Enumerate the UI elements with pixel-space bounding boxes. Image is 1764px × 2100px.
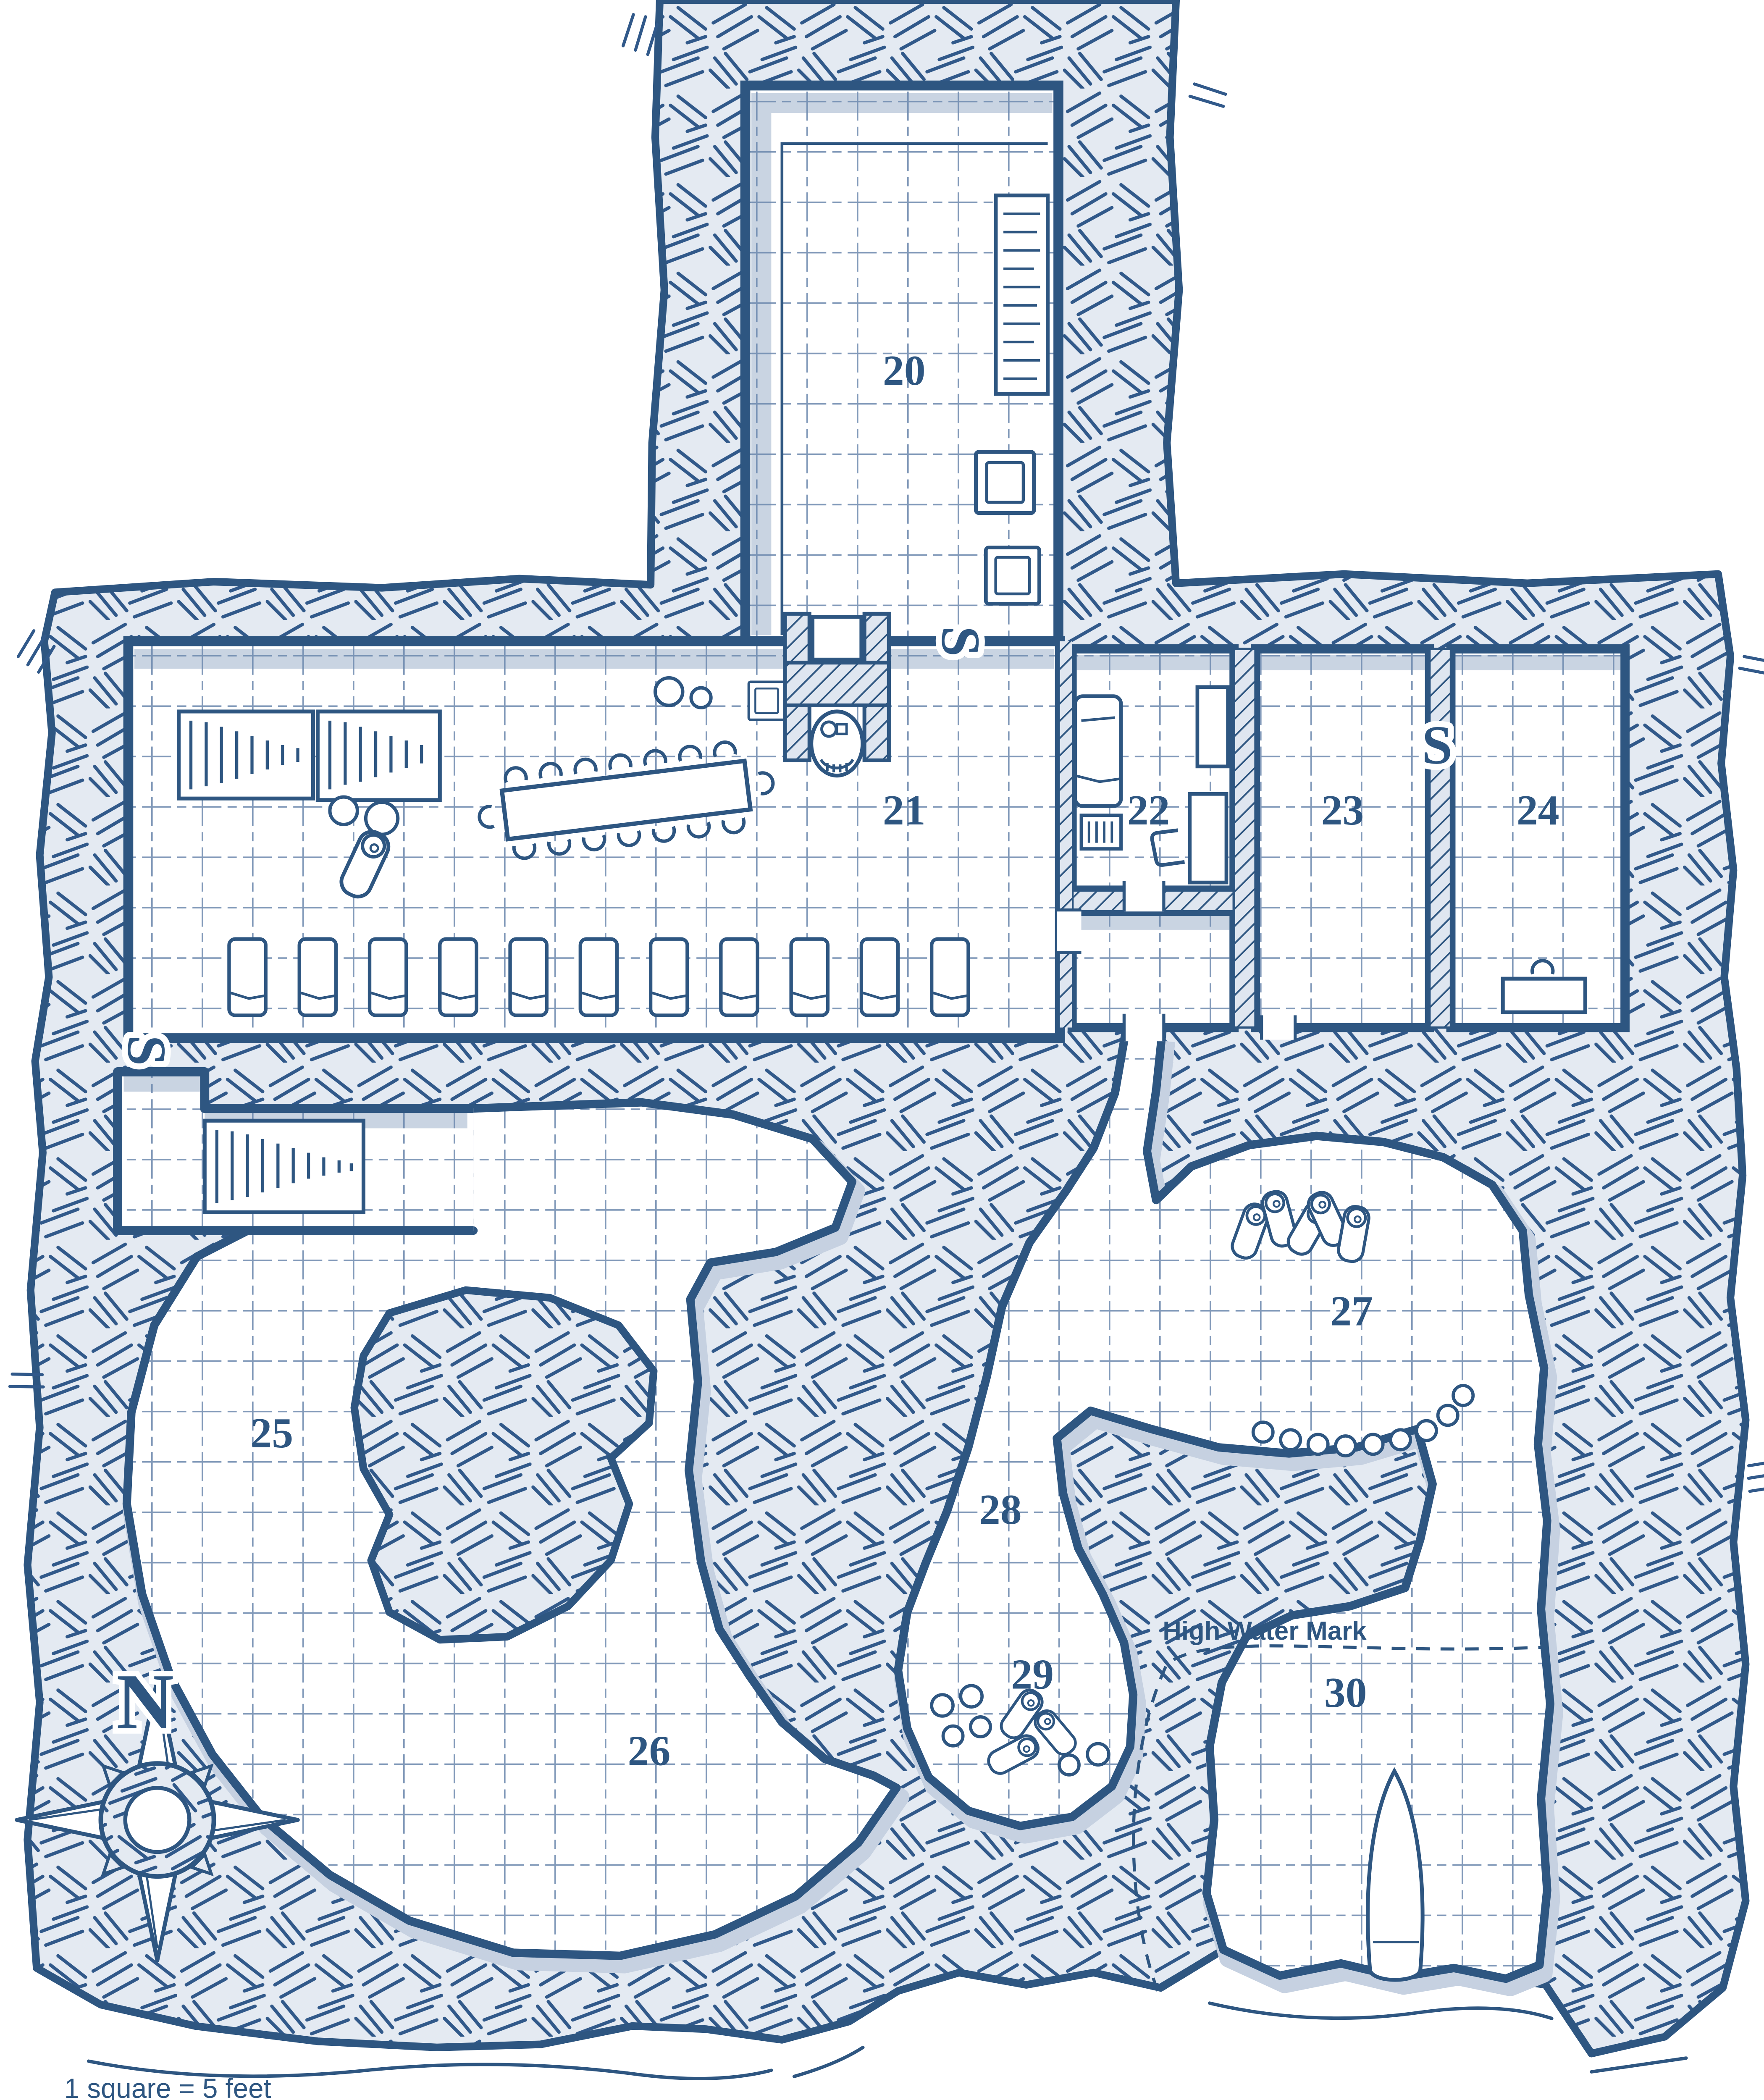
room-23 (1255, 649, 1430, 1028)
room-label-28: 28 (979, 1486, 1022, 1533)
wall-hatched (1234, 649, 1255, 1028)
secret-door-marker: S (1422, 715, 1452, 776)
cask-icon (1417, 1421, 1436, 1441)
wine-rack-icon (205, 1121, 363, 1212)
room-label-30: 30 (1324, 1669, 1367, 1717)
compass-north-label: N (116, 1658, 174, 1746)
cask-icon (1438, 1405, 1458, 1425)
bed-icon (861, 939, 898, 1016)
cask-icon (1059, 1755, 1079, 1775)
bed-icon (1075, 696, 1121, 806)
room-label-20: 20 (883, 347, 926, 394)
cask-icon (971, 1717, 990, 1737)
bed-icon (510, 939, 547, 1016)
stove-and-chimney (785, 614, 889, 775)
bed-icon (721, 939, 757, 1016)
room-label-24: 24 (1517, 787, 1559, 834)
wine-rack-icon (318, 711, 440, 800)
bed-icon (440, 939, 476, 1016)
cask-icon (1087, 1743, 1109, 1765)
room-label-21: 21 (883, 787, 926, 834)
cask-icon (1363, 1434, 1383, 1454)
bed-icon (580, 939, 617, 1016)
cask-icon (1391, 1430, 1410, 1449)
cupboard-icon (1197, 687, 1228, 766)
cask-icon (943, 1726, 963, 1746)
room-label-22: 22 (1127, 787, 1170, 834)
secret-door-marker: S (116, 1035, 177, 1066)
cask-icon (366, 802, 398, 834)
corridor-south-of-22 (1072, 911, 1234, 1027)
cask-icon (932, 1695, 953, 1716)
dungeon-map-page: 20 21 22 23 24 25 26 27 28 29 30 S S S H… (0, 0, 1764, 2100)
wall-hatched (1060, 641, 1072, 1028)
room-label-27: 27 (1330, 1287, 1373, 1335)
wall-hatched (1430, 649, 1451, 1028)
cask-icon (1281, 1430, 1300, 1449)
cask-icon (691, 688, 711, 708)
cask-icon (1453, 1386, 1473, 1405)
room-22 (1072, 649, 1234, 890)
cask-icon (961, 1685, 982, 1707)
room-label-26: 26 (628, 1727, 671, 1774)
cask-icon (1253, 1422, 1273, 1442)
bed-icon (651, 939, 687, 1016)
bed-icon (791, 939, 828, 1016)
room-24 (1451, 649, 1625, 1028)
secret-door-marker: S (930, 626, 991, 656)
room-label-23: 23 (1321, 787, 1364, 834)
stove-icon (811, 711, 863, 776)
high-water-mark-label: High Water Mark (1163, 1617, 1367, 1646)
bed-icon (229, 939, 265, 1016)
bookcase-icon (1190, 794, 1226, 882)
map-scale-note: 1 square = 5 feet (64, 2073, 271, 2100)
dungeon-map: 20 21 22 23 24 25 26 27 28 29 30 S S S H… (0, 0, 1764, 2100)
sink-icon (749, 682, 785, 719)
sink-icon (976, 452, 1034, 513)
room-label-25: 25 (250, 1410, 293, 1457)
cask-icon (330, 797, 357, 824)
bookcase-icon (996, 195, 1048, 394)
wine-rack-icon (1081, 815, 1121, 849)
cask-icon (1336, 1436, 1355, 1456)
wine-rack-icon (178, 711, 313, 798)
sink-icon (986, 548, 1039, 604)
cask-icon (1308, 1434, 1328, 1454)
bed-icon (370, 939, 406, 1016)
bed-icon (932, 939, 968, 1016)
bed-icon (299, 939, 336, 1016)
cask-icon (655, 678, 682, 705)
table-icon (1503, 979, 1585, 1012)
room-label-29: 29 (1011, 1651, 1054, 1698)
